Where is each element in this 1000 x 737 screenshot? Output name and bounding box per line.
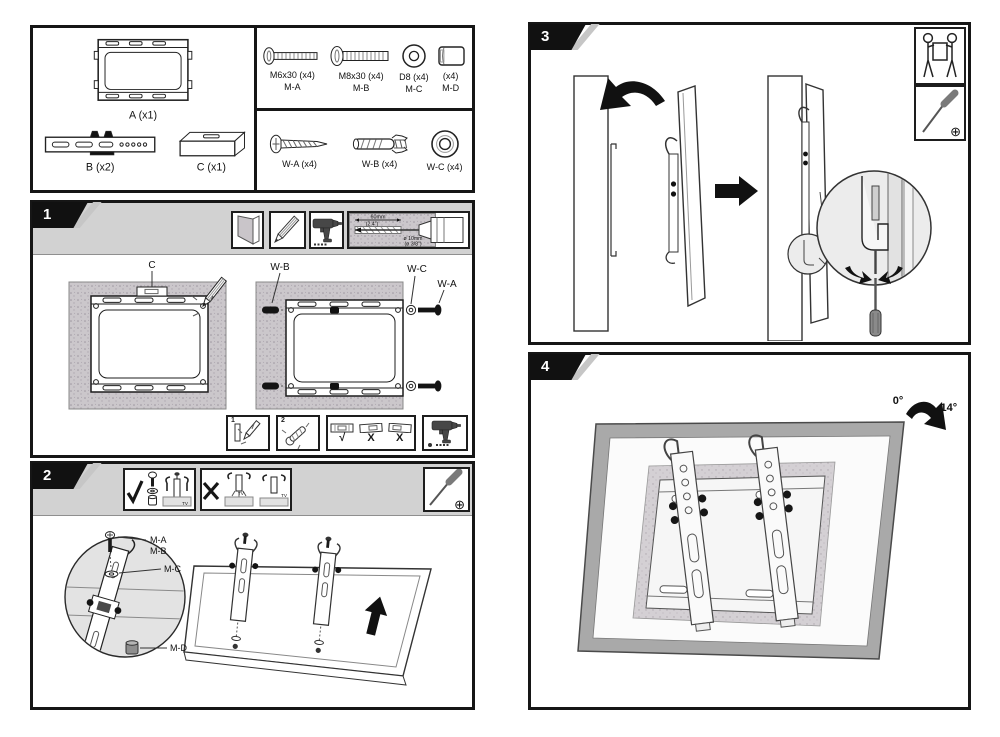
level-mark-x2: X [396, 433, 403, 444]
lock-screwdriver [870, 278, 881, 336]
step2-illustration: M-A M-B M-C M-D [34, 517, 471, 706]
level-bad-1: X [359, 423, 383, 444]
step4-number-tab: 4 [530, 354, 610, 382]
parts-inner: A (x1) B (x2) [33, 28, 472, 190]
screwdriver-tool-box: ⊕ [423, 467, 470, 512]
hardware-m-a: M6x30 (x4) M-A [261, 43, 323, 93]
panel-step-2: TV TV TV [30, 461, 475, 710]
substep-anchor-box: 2 [276, 415, 320, 451]
label-c: C [148, 260, 155, 271]
hardware-w-c: W-C (x4) [427, 127, 463, 173]
part-b-label: B (x2) [86, 161, 115, 173]
part-c-drawing [180, 132, 244, 155]
hardware-w-a-label: W-A (x4) [282, 159, 317, 170]
screws-w-a [406, 304, 441, 391]
label-m-b: M-B [150, 546, 167, 556]
drill-dia-in: (ø 3/8") [404, 242, 421, 247]
step4-number: 4 [541, 358, 549, 375]
step3-illustration [532, 26, 969, 341]
hardware-row-wall-fixings: W-A (x4) W-B (x4) [257, 111, 472, 191]
label-m-a: M-A [150, 535, 167, 545]
panel-step-1: 60mm (2.4") ø 10mm (ø 3/8") 1 [30, 200, 475, 458]
level-mark-check: √ [339, 433, 345, 444]
panel-step-4: 4 0° -14° [528, 352, 971, 710]
hardware-m-b-code: M-B [353, 83, 370, 94]
step2-number-tab: 2 [32, 463, 112, 491]
wood-screw-icon [267, 130, 333, 158]
screwdriver-icon: ⊕ [425, 469, 468, 510]
hardware-w-b-label: W-B (x4) [362, 159, 397, 170]
drill-icon [309, 211, 344, 249]
hardware-row-machine-screws: M6x30 (x4) M-A M8x30 (x4) M-B [257, 28, 472, 111]
drill-depth-mm: 60mm [371, 215, 386, 221]
label-w-b: W-B [270, 262, 290, 273]
label-m-c: M-C [164, 564, 181, 574]
part-c-label: C (x1) [197, 161, 226, 173]
instruction-sheet: A (x1) B (x2) [0, 0, 1000, 737]
tilt-angle-from: 0° [893, 395, 904, 407]
pencil-icon [269, 211, 306, 249]
level-check-box: √ X X [326, 415, 416, 451]
step3-number: 3 [541, 28, 549, 45]
big-washer-icon [428, 127, 462, 161]
tv-label-2: TV [238, 491, 245, 496]
hardware-m-d-size: (x4) [443, 71, 459, 82]
hardware-m-b: M8x30 (x4) M-B [328, 42, 394, 94]
tv-label-3: TV [281, 493, 288, 498]
hardware-w-a: W-A (x4) [267, 130, 333, 170]
spacer-icon [434, 42, 468, 70]
bracket-wrong-1-icon: TV [223, 471, 255, 509]
hook-motion-arrow [600, 78, 665, 110]
wrong-assembly-box: TV TV [200, 468, 292, 511]
step1-number: 1 [43, 206, 51, 223]
hardware-m-d: (x4) M-D [434, 42, 468, 94]
next-arrow [715, 176, 758, 206]
panel-parts: A (x1) B (x2) [30, 25, 475, 193]
hardware-m-c-code: M-C [405, 84, 422, 95]
tv-label-1: TV [182, 501, 189, 506]
tv-rail-side [666, 138, 678, 264]
step1-illustration: C [34, 256, 471, 420]
hardware-w-c-label: W-C (x4) [427, 162, 463, 173]
hardware-w-b: W-B (x4) [348, 130, 412, 170]
step1-number-tab: 1 [32, 202, 112, 230]
wall-anchor-icon [348, 130, 412, 158]
label-w-c: W-C [407, 264, 427, 275]
hardware-m-d-code: M-D [442, 83, 459, 94]
screw-m6-icon [261, 43, 323, 69]
correct-assembly-box: TV [123, 468, 196, 511]
substep-mark-box: 1 [226, 415, 270, 451]
spacer-m-d-drawing [126, 641, 138, 654]
parts-list: A (x1) B (x2) [33, 28, 257, 190]
step2-number: 2 [43, 467, 51, 484]
hardware-m-c: D8 (x4) M-C [399, 41, 429, 95]
wall-plate-back [646, 476, 825, 614]
hardware-m-b-size: M8x30 (x4) [339, 71, 384, 82]
hardware-m-a-code: M-A [284, 82, 301, 93]
part-a-drawing [94, 40, 192, 100]
cross-icon [202, 474, 220, 506]
substep-1-number: 1 [231, 417, 235, 424]
fastener-stack-icon [146, 471, 159, 509]
hardware-m-a-size: M6x30 (x4) [270, 70, 315, 81]
drill-tool-box [422, 415, 468, 451]
check-icon [126, 474, 144, 506]
drill-depth-in: (2.4") [366, 222, 379, 228]
drill-depth-diagram: 60mm (2.4") ø 10mm (ø 3/8") [347, 211, 470, 249]
hardware-list: M6x30 (x4) M-A M8x30 (x4) M-B [257, 28, 472, 190]
hardware-m-c-size: D8 (x4) [399, 72, 429, 83]
bracket-wrong-2-icon: TV [258, 471, 290, 509]
level-bad-2: X [388, 423, 412, 444]
wall-corner-icon [231, 211, 264, 249]
parts-illustration: A (x1) B (x2) [33, 28, 257, 186]
bracket-on-tv-icon: TV [161, 471, 193, 509]
step4-illustration: 0° -14° [532, 356, 969, 706]
substep-2-number: 2 [281, 417, 285, 424]
level-ok: √ [330, 423, 354, 444]
washer-d8-icon [399, 41, 429, 71]
step3-number-tab: 3 [530, 24, 610, 52]
label-m-d: M-D [170, 643, 187, 653]
phillips-icon: ⊕ [454, 497, 465, 510]
tilt-arrow [906, 402, 946, 430]
panel-step-3: 3 ⊕ [528, 22, 971, 345]
part-b-drawing [46, 131, 155, 154]
level-mark-x1: X [367, 433, 374, 444]
part-a-label: A (x1) [129, 110, 157, 122]
label-w-a: W-A [437, 279, 457, 290]
screw-m8-icon [328, 42, 394, 70]
